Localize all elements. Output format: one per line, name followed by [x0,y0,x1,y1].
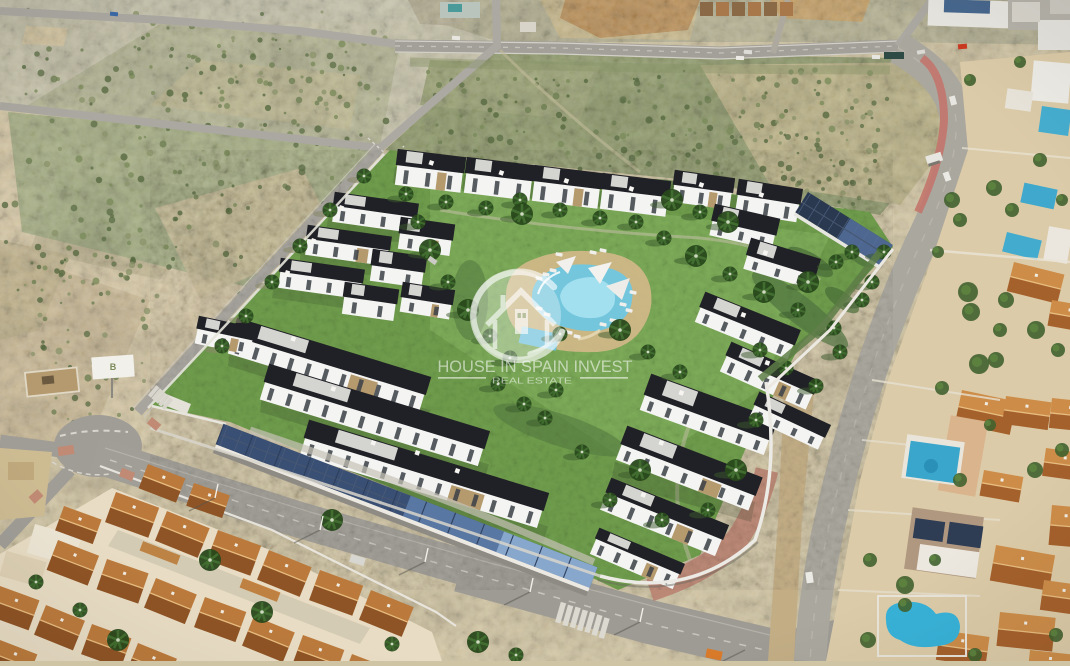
svg-text:HOUSE IN SPAIN INVEST: HOUSE IN SPAIN INVEST [438,358,633,376]
svg-text:REAL ESTATE: REAL ESTATE [492,376,572,386]
svg-text:B: B [110,362,117,372]
